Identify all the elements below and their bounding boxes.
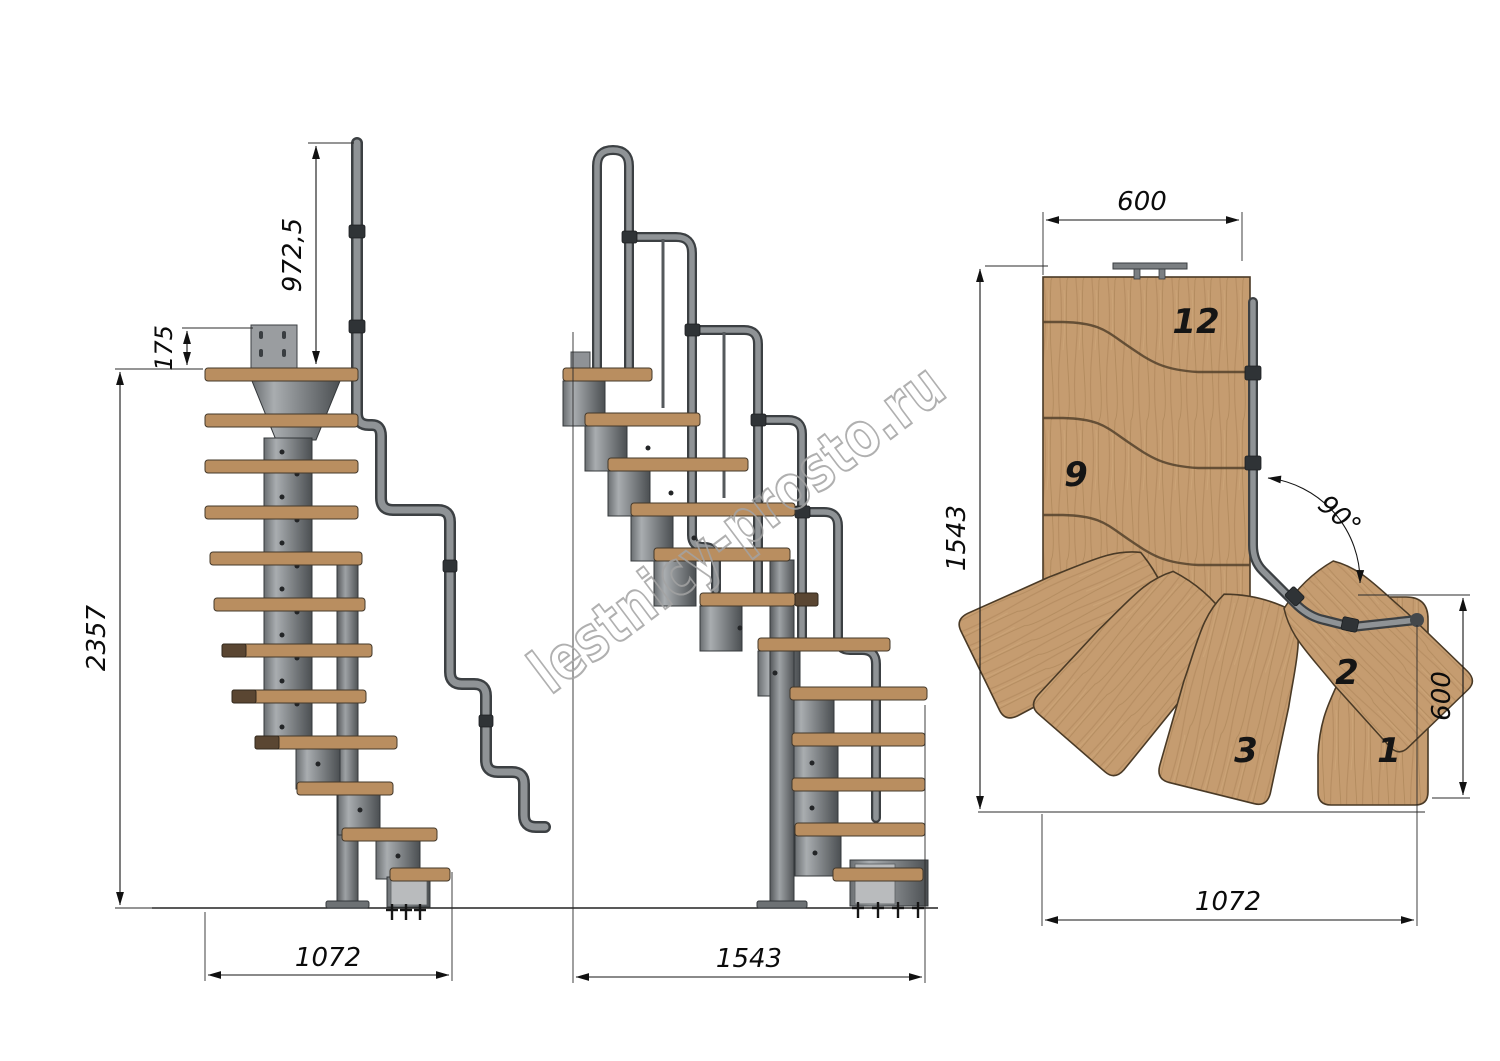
drawing-page: 972,5 175 2357 1072 [0,0,1500,1061]
tread-label-3: 3 [1234,731,1258,771]
tread-label-1: 1 [1377,731,1401,771]
dim-side-bracket-height: 175 [150,325,253,371]
dim-text-600-right: 600 [1427,671,1457,721]
dim-text-972-5: 972,5 [278,218,308,292]
dim-plan-flight-width: 600 [1043,187,1242,275]
side-view: 972,5 175 2357 1072 [82,143,545,981]
rail-clamp [479,715,493,727]
drawing-canvas: 972,5 175 2357 1072 [0,0,1500,1061]
plan-view: 12 9 2 3 1 600 1543 90° 600 1072 [942,187,1477,926]
rail-clamp [443,560,457,572]
tread-label-12: 12 [1172,302,1219,342]
side-treads [205,368,450,881]
rail-clamp [349,225,365,238]
dim-text-2357: 2357 [82,604,112,671]
dim-text-600-top: 600 [1117,187,1167,217]
dim-text-175: 175 [150,325,178,371]
side-handrail [349,143,545,827]
tread-label-9: 9 [1064,455,1088,495]
dim-text-1072-plan: 1072 [1195,887,1261,917]
dim-side-total-height: 2357 [82,369,203,908]
dim-text-1543-plan: 1543 [942,505,972,571]
dim-text-90deg: 90° [1312,490,1367,543]
dim-text-1543-front: 1543 [716,944,782,974]
anchor-bolts [386,904,426,920]
rail-clamp [349,320,365,333]
side-top-bracket [251,325,297,368]
dim-text-1072-side: 1072 [295,943,361,973]
tread-label-2: 2 [1335,653,1359,693]
